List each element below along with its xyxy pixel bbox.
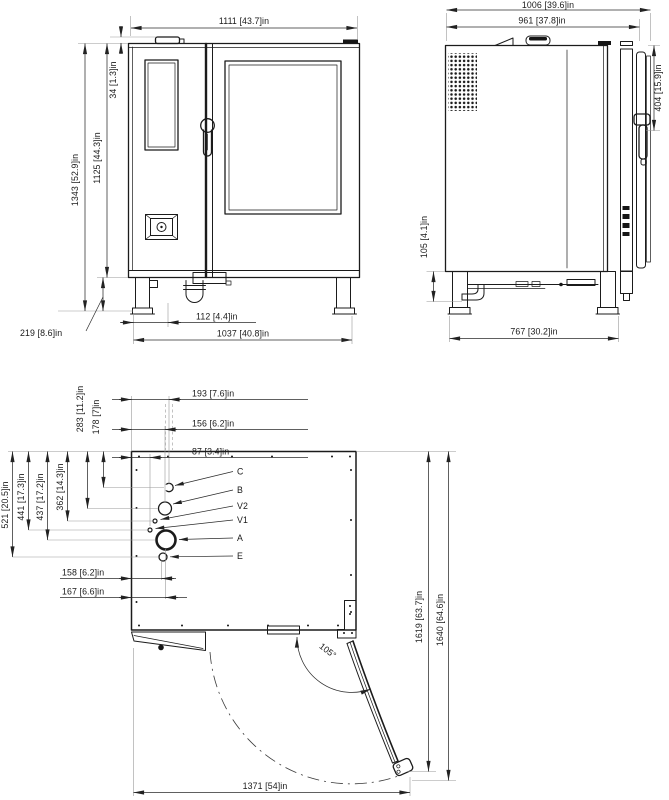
- dim-side-handle: 404 [15.9]in: [653, 64, 663, 111]
- dim-plan-e-y: 521 [20.5]in: [0, 481, 10, 528]
- dim-plan-door-open-max: 1640 [64.6]in: [435, 594, 445, 646]
- dim-front-leg-span: 1037 [40.8]in: [217, 329, 269, 339]
- dim-front-total-h: 1343 [52.9]in: [70, 154, 80, 206]
- utility-connections: [148, 483, 176, 561]
- dim-plan-a-x: 167 [6.6]in: [62, 587, 104, 597]
- dim-plan-b-x: 156 [6.2]in: [192, 419, 234, 429]
- label-connection-e: E: [237, 551, 243, 561]
- dim-plan-door-open: 1619 [63.7]in: [414, 591, 424, 643]
- dim-plan-v2-y: 362 [14.3]in: [55, 463, 65, 510]
- connection-b: [159, 502, 172, 515]
- connection-v2: [153, 519, 157, 523]
- dim-front-vent: 34 [1.3]in: [108, 61, 118, 98]
- front-view: 1111 [43.7]in 34 [1.3]in 1125 [44.3]in 1…: [20, 16, 360, 344]
- label-connection-b: B: [237, 485, 243, 495]
- dim-plan-v-x: 87 [3.4]in: [192, 447, 229, 457]
- side-legs: [448, 272, 620, 315]
- drip-tray: [132, 632, 206, 651]
- dim-front-leg-h: 219 [8.6]in: [20, 328, 62, 338]
- side-view: 1006 [39.6]in 961 [37.8]in 404 [15.9]in …: [419, 0, 663, 342]
- side-drain-elbow: [462, 285, 484, 301]
- dim-plan-c-x: 193 [7.6]in: [192, 389, 234, 399]
- dim-plan-b-y: 283 [11.2]in: [75, 386, 85, 433]
- connection-v1: [148, 528, 152, 532]
- dim-side-depth-body: 961 [37.8]in: [518, 16, 565, 26]
- dim-plan-v1-y: 441 [17.3]in: [16, 473, 26, 520]
- dim-plan-e-x: 158 [6.2]in: [62, 568, 104, 578]
- open-door-handle: [392, 757, 414, 776]
- label-connection-v1: V1: [237, 515, 248, 525]
- door-swing-arc: [210, 652, 401, 784]
- front-body: [129, 44, 360, 278]
- dim-side-depth-total: 1006 [39.6]in: [522, 0, 574, 10]
- dim-front-width: 1111 [43.7]in: [219, 16, 269, 26]
- oven-dimension-drawing: 1111 [43.7]in 34 [1.3]in 1125 [44.3]in 1…: [0, 0, 669, 800]
- label-connection-v2: V2: [237, 501, 248, 511]
- hinge-bracket: [338, 601, 357, 639]
- dim-side-clearance: 105 [4.1]in: [419, 216, 429, 258]
- door-window: [225, 61, 341, 214]
- top-right-cap: [343, 40, 358, 44]
- dim-front-drain: 112 [4.4]in: [196, 312, 238, 322]
- connection-a: [157, 531, 176, 550]
- vent-grille: [448, 53, 477, 111]
- plan-view: 105° C B V2 V1 A E: [0, 386, 456, 796]
- label-connection-a: A: [237, 533, 243, 543]
- dim-plan-c-y: 178 [7]in: [91, 400, 101, 435]
- dim-plan-a-y: 437 [17.2]in: [35, 473, 45, 520]
- control-knob: [146, 215, 178, 240]
- dim-front-body-h: 1125 [44.3]in: [92, 132, 102, 184]
- front-legs: [131, 278, 357, 315]
- door-angle-label: 105°: [317, 641, 338, 660]
- open-door: [347, 641, 414, 777]
- side-door: [621, 49, 651, 301]
- label-connection-c: C: [237, 467, 244, 477]
- dim-plan-width-open: 1371 [54]in: [243, 781, 288, 791]
- drawing-canvas: 1111 [43.7]in 34 [1.3]in 1125 [44.3]in 1…: [0, 0, 669, 800]
- control-display: [145, 60, 178, 150]
- door-angle-arc: [297, 637, 371, 692]
- vent-chimney: [156, 37, 180, 44]
- dim-side-leg-span: 767 [30.2]in: [510, 327, 557, 337]
- side-dimensions: 1006 [39.6]in 961 [37.8]in 404 [15.9]in …: [419, 0, 663, 342]
